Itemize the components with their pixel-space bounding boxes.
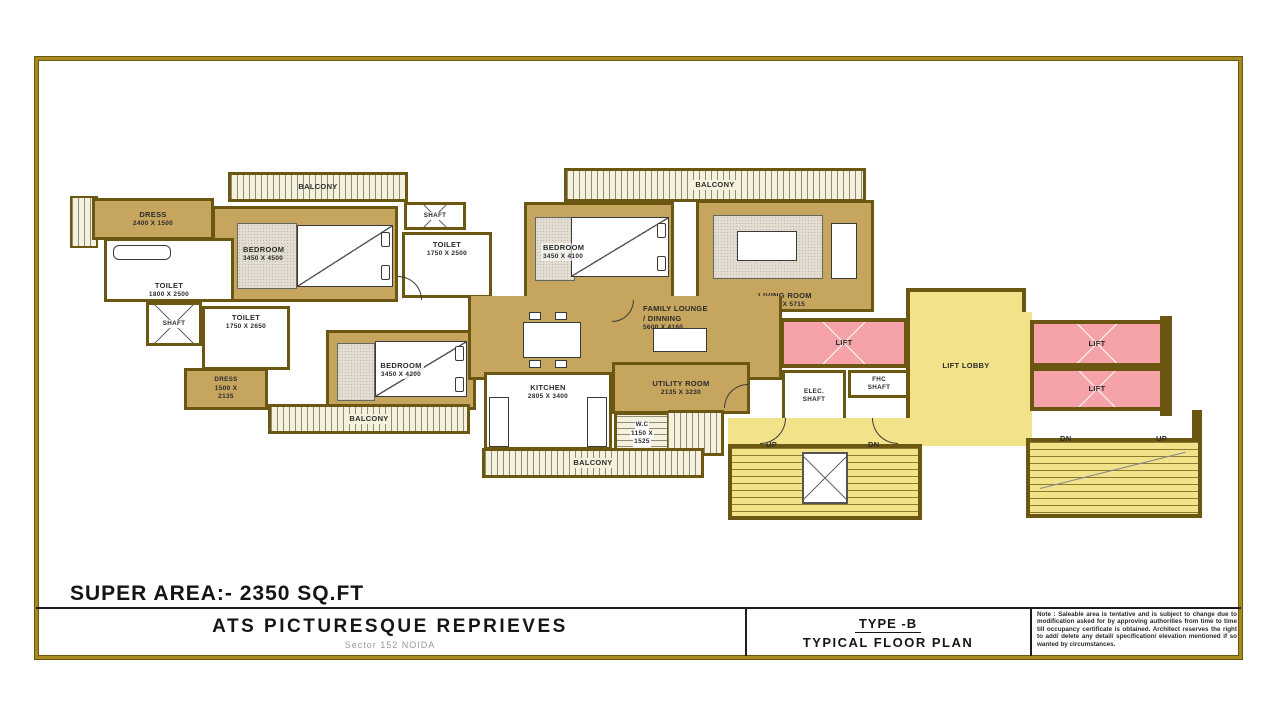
titleblock-divider-2 [1030,609,1032,656]
lift-3-label: LIFT [1034,371,1160,407]
balcony-4: BALCONY [482,448,704,478]
project-title-cell: ATS PICTURESQUE REPRIEVES Sector 152 NOI… [36,609,744,656]
room-dress-1: DRESS 2400 X 1500 [92,198,214,240]
balcony-4-label: BALCONY [485,451,701,475]
room-lift-3: LIFT [1030,367,1164,411]
room-shaft-1: SHAFT [146,302,202,346]
room-toilet-3: TOILET 1750 X 2650 [202,306,290,370]
room-lift-2: LIFT [1030,320,1164,367]
bedroom-3-pillow [455,346,464,361]
dining-chair [529,312,541,320]
bathtub-icon [113,245,171,260]
staircase-2: DN UP [1026,438,1202,518]
room-kitchen: KITCHEN 2805 X 3400 [484,372,612,450]
dining-table [523,322,581,358]
room-bedroom-3: BEDROOM 3450 X 4200 [326,330,476,410]
room-shaft-2: SHAFT [404,202,466,230]
lift-1-label: LIFT [784,322,904,364]
bedroom-1-pillow [381,232,390,247]
room-bedroom-2: BEDROOM 3450 X 4100 [524,202,674,302]
room-elec-shaft: ELEC. SHAFT [782,370,846,422]
dining-chair [555,312,567,320]
project-location: Sector 152 NOIDA [345,640,436,650]
balcony-3-label: BALCONY [271,407,467,431]
stair-1-void [802,452,848,504]
room-fhc-shaft: FHC SHAFT [848,370,910,398]
bedroom-1-pillow [381,265,390,280]
staircase-1: UP DN [728,444,922,520]
bedroom-3-pillow [455,377,464,392]
lift-2-label: LIFT [1034,324,1160,363]
stair-2-break-line [1040,452,1186,490]
bedroom-2-rug [535,217,575,281]
plan-type: TYPE -B [855,616,921,633]
lounge-sideboard [653,328,707,352]
bedroom-1-bed [297,225,393,287]
balcony-2-label: BALCONY [567,171,863,199]
dining-chair [529,360,541,368]
bedroom-3-rug [337,343,375,401]
toilet-3-label: TOILET 1750 X 2650 [205,309,287,371]
bedroom-2-bed [571,217,669,277]
shaft-2-label: SHAFT [407,205,463,227]
bedroom-2-pillow [657,223,666,238]
balcony-3: BALCONY [268,404,470,434]
fhc-shaft-label: FHC SHAFT [851,373,907,395]
balcony-2: BALCONY [564,168,866,202]
dress-1-label: DRESS 2400 X 1500 [95,201,211,237]
room-lift-1: LIFT [780,318,908,368]
elec-shaft-label: ELEC. SHAFT [785,373,843,419]
room-toilet-1: TOILET 1800 X 2500 [104,238,234,302]
room-dress-2: DRESS 1500 X 2135 [184,368,268,410]
right-boundary-wall [1160,316,1172,416]
bedroom-2-pillow [657,256,666,271]
disclaimer-note: Note : Saleable area is tentative and is… [1037,611,1237,655]
dining-chair [555,360,567,368]
kitchen-counter-left [489,397,509,447]
living-tv-unit [831,223,857,279]
balcony-1: BALCONY [228,172,408,202]
floor-plan-page: { "title_block": { "super_area": "SUPER … [0,0,1280,720]
kitchen-counter-right [587,397,607,447]
plan-type-cell: TYPE -B TYPICAL FLOOR PLAN [747,609,1029,656]
bedroom-1-rug [237,223,297,289]
living-center-table [737,231,797,261]
project-name: ATS PICTURESQUE REPRIEVES [212,616,568,638]
plan-name: TYPICAL FLOOR PLAN [803,635,973,650]
bedroom-3-bed [375,341,467,397]
shaft-1-label: SHAFT [149,305,199,343]
dress-2-label: DRESS 1500 X 2135 [187,371,265,407]
room-bedroom-1: BEDROOM 3450 X 4500 [212,206,398,302]
super-area-text: SUPER AREA:- 2350 SQ.FT [70,582,364,606]
balcony-1-label: BALCONY [231,175,405,199]
right-boundary-wall-lower [1192,410,1202,442]
